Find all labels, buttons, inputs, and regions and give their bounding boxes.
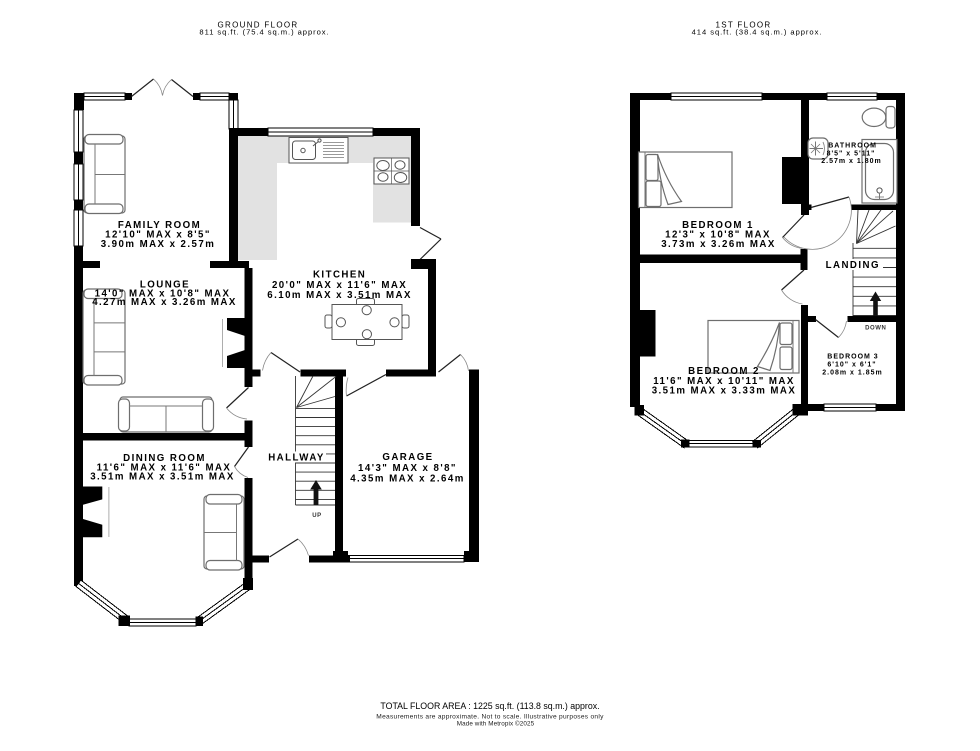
svg-text:BATHROOM: BATHROOM [828,143,877,150]
svg-text:2.57m x 1.80m: 2.57m x 1.80m [821,158,881,165]
svg-text:4.27m MAX x 3.26m MAX: 4.27m MAX x 3.26m MAX [92,297,237,308]
svg-text:414 sq.ft. (38.4 sq.m.) approx: 414 sq.ft. (38.4 sq.m.) approx. [692,28,823,37]
svg-text:811 sq.ft. (75.4 sq.m.) approx: 811 sq.ft. (75.4 sq.m.) approx. [199,28,329,37]
svg-text:DOWN: DOWN [865,325,886,331]
svg-text:LANDING: LANDING [826,260,880,271]
svg-text:UP: UP [312,513,322,519]
svg-text:GARAGE: GARAGE [382,452,433,463]
svg-text:6'10" x 6'1": 6'10" x 6'1" [827,362,876,369]
svg-text:HALLWAY: HALLWAY [268,453,325,464]
svg-text:6.10m MAX x 3.51m MAX: 6.10m MAX x 3.51m MAX [267,290,412,301]
svg-text:TOTAL FLOOR AREA : 1225 sq.ft.: TOTAL FLOOR AREA : 1225 sq.ft. (113.8 sq… [380,701,599,711]
svg-text:3.51m MAX x 3.33m MAX: 3.51m MAX x 3.33m MAX [652,386,797,397]
svg-text:8'5" x 5'11": 8'5" x 5'11" [827,150,876,157]
svg-text:2.08m x 1.85m: 2.08m x 1.85m [822,369,882,376]
svg-text:Made with Metropix ©2025: Made with Metropix ©2025 [457,719,535,727]
svg-text:3.90m MAX x 2.57m: 3.90m MAX x 2.57m [101,239,216,250]
svg-text:BEDROOM 3: BEDROOM 3 [827,354,878,361]
svg-text:3.73m x 3.26m MAX: 3.73m x 3.26m MAX [661,239,776,250]
svg-text:4.35m MAX x 2.64m: 4.35m MAX x 2.64m [350,473,465,484]
svg-text:3.51m MAX x 3.51m MAX: 3.51m MAX x 3.51m MAX [90,472,235,483]
svg-text:14'3" MAX x 8'8": 14'3" MAX x 8'8" [358,463,457,474]
svg-text:KITCHEN: KITCHEN [313,270,366,281]
